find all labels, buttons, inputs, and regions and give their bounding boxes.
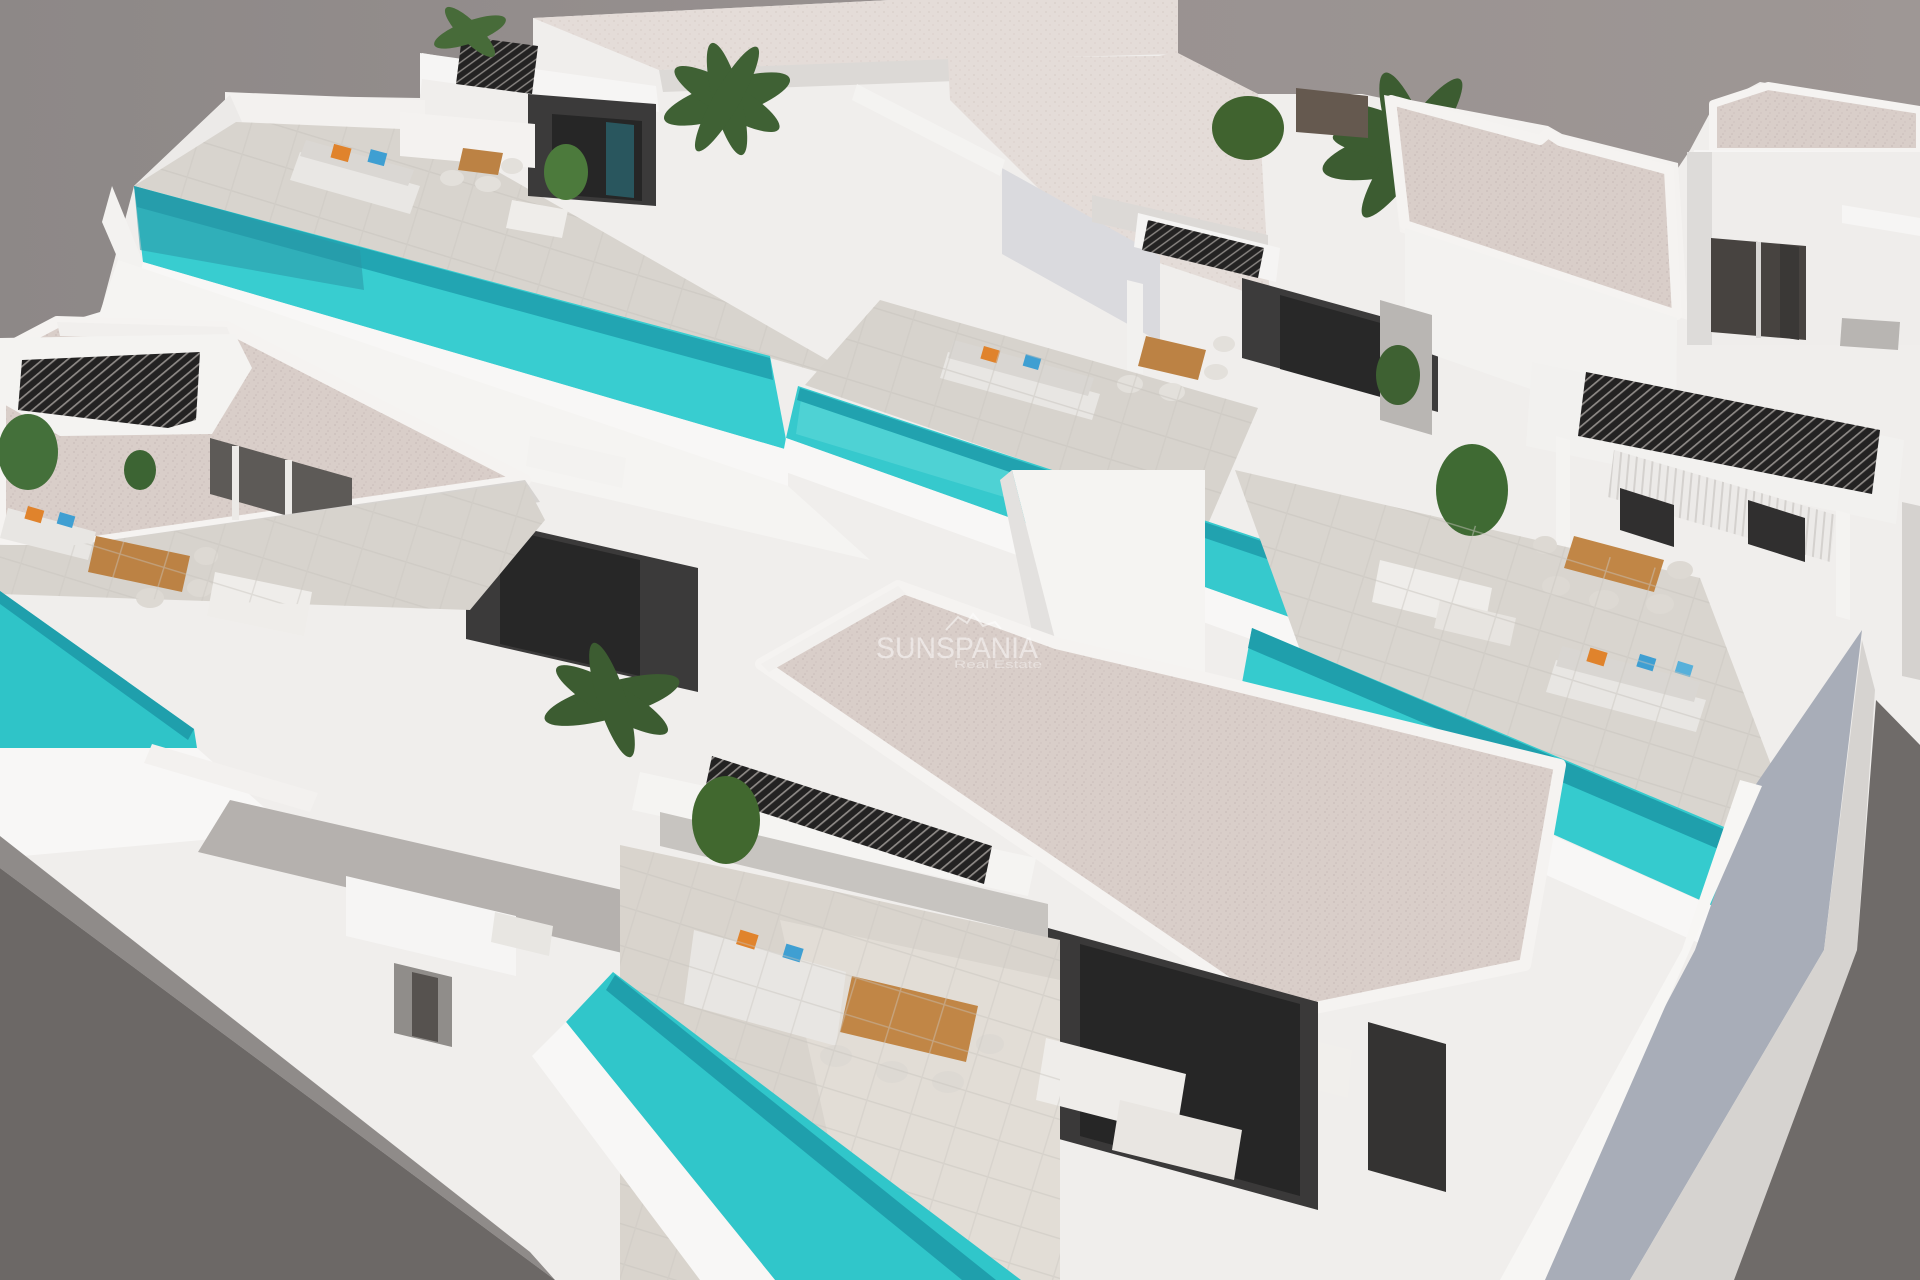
svg-text:Real Estate: Real Estate [954, 659, 1042, 671]
